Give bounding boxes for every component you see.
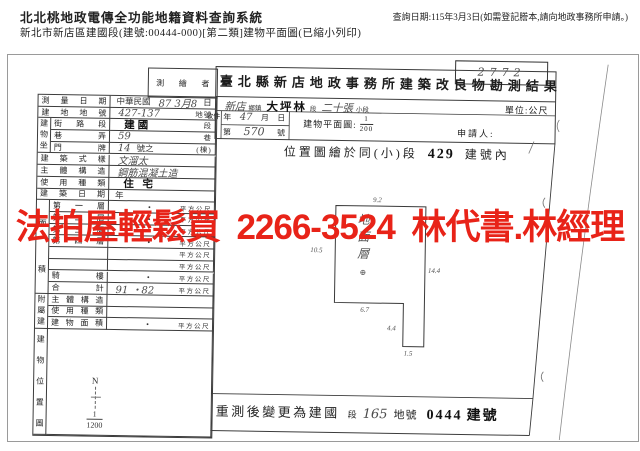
plan-scale-fraction: 1 200 xyxy=(360,116,374,134)
remeasure-note: 重測後變更為建國 段 165 地號 0444 建號 xyxy=(211,394,536,442)
doc-subtitle: 新北市新店區建國段(建號:00444-000)[第二類]建物平面圖(已縮小列印) xyxy=(20,25,361,40)
remeasure-section-label: 段 xyxy=(348,410,357,420)
table-cell: 建物面積 xyxy=(48,317,107,330)
table-cell: 建物坐落 xyxy=(38,118,52,153)
table-cell: 門牌 xyxy=(51,142,110,155)
dim-bottom: 6.7 xyxy=(360,306,369,314)
receipt-no-suffix: 號 xyxy=(277,128,285,139)
subsection-label: 小段 xyxy=(356,107,369,114)
receipt-date: 年 47 月 日 xyxy=(223,112,285,124)
dim-tab-height: 4.4 xyxy=(387,324,396,332)
applicant-label: 申請人: xyxy=(457,126,495,140)
subsection-value: 二十張 xyxy=(321,102,353,114)
stray-mark xyxy=(557,120,559,132)
screenshot-root: 北北桃地政電傳全功能地籍資料查詢系統 查詢日期:115年3月3日(如需登記謄本,… xyxy=(0,0,640,451)
watermark-text: 法拍屋輕鬆買 2266-3524 林代書.林經理 xyxy=(0,199,640,250)
remeasure-building-label: 建號 xyxy=(466,409,498,425)
receipt-date-year-label: 年 xyxy=(223,112,231,123)
table-cell xyxy=(46,329,213,438)
table-cell: 街路段 xyxy=(51,118,110,131)
plan-scale: 建物平面圖: 1 200 xyxy=(303,115,373,133)
receipt-no-hand: 570 xyxy=(243,125,264,138)
table-cell: 附屬建物 xyxy=(35,294,49,329)
receipt-no-prefix: 第 xyxy=(223,127,231,138)
receipt-number: 第 570 號 xyxy=(223,125,285,139)
dim-right: 14.4 xyxy=(428,267,440,275)
building-detail-table: N 1 1200 測量日期中華民國87 3月8日建地地號427-137地號建物坐… xyxy=(32,94,217,439)
location-note-suffix: 建號內 xyxy=(465,147,510,162)
plan-scale-label: 建物平面圖: xyxy=(303,117,357,131)
stray-mark xyxy=(541,372,543,382)
receipt-date-hand: 47 xyxy=(240,112,253,123)
table-cell: 騎樓 xyxy=(49,270,108,283)
remeasure-parcel-hand: 165 xyxy=(363,407,388,422)
scale-denominator: 200 xyxy=(360,124,374,134)
table-cell: 合計 xyxy=(49,282,108,295)
dim-tab-width: 1.5 xyxy=(404,350,413,358)
location-note-text: 位置圖繪於同(小)段 xyxy=(284,145,418,161)
remeasure-building-number: 0444 xyxy=(426,408,462,424)
page-title: 北北桃地政電傳全功能地籍資料查詢系統 xyxy=(20,7,263,26)
table-cell: 主體構造 xyxy=(48,294,107,307)
section-label: 段 xyxy=(310,106,317,113)
table-cell xyxy=(49,259,108,272)
unit-note: 單位:公尺 xyxy=(462,102,548,116)
remeasure-parcel-label: 地號 xyxy=(393,409,417,421)
location-note: 位置圖繪於同(小)段 429 建號內 xyxy=(284,143,510,165)
receipt-date-month-label: 月 xyxy=(261,112,269,123)
location-note-number: 429 xyxy=(428,147,455,162)
surveyor-cell: 測繪者 xyxy=(148,67,218,98)
table-cell: 使用種類 xyxy=(48,306,107,319)
remeasure-text: 重測後變更為建國 xyxy=(216,404,340,421)
table-cell: 巷弄 xyxy=(51,130,110,143)
query-date-note: 查詢日期:115年3月3日(如需登記謄本,請向地政事務所申請。) xyxy=(393,10,628,23)
receipt-date-day-label: 日 xyxy=(277,113,285,124)
floor-label-mark: ⊕ xyxy=(359,268,366,277)
scale-numerator: 1 xyxy=(364,116,369,124)
